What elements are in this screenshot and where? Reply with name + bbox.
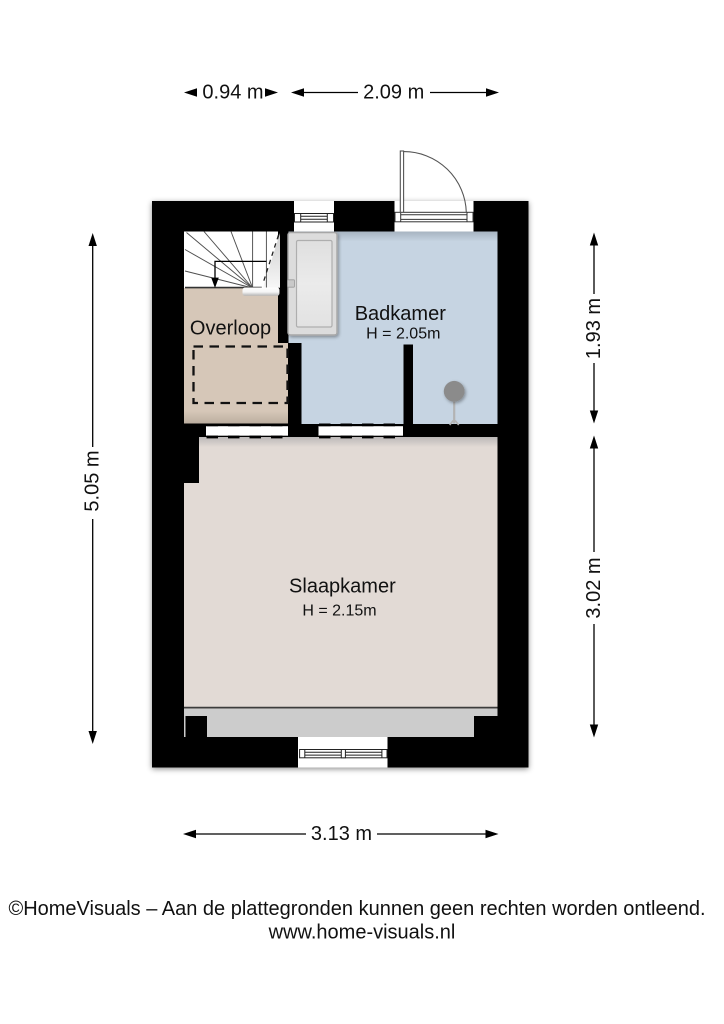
svg-text:©HomeVisuals – Aan de plattegr: ©HomeVisuals – Aan de plattegronden kunn… <box>8 898 705 920</box>
svg-text:Slaapkamer: Slaapkamer <box>289 576 396 598</box>
svg-text:www.home-visuals.nl: www.home-visuals.nl <box>268 922 456 944</box>
svg-text:Overloop: Overloop <box>190 318 271 340</box>
svg-text:1.93 m: 1.93 m <box>583 298 605 359</box>
svg-text:5.05 m: 5.05 m <box>82 450 104 511</box>
svg-text:2.09 m: 2.09 m <box>363 82 424 104</box>
svg-text:H = 2.05m: H = 2.05m <box>366 326 440 343</box>
svg-text:H = 2.15m: H = 2.15m <box>302 603 376 620</box>
svg-text:3.02 m: 3.02 m <box>583 557 605 618</box>
svg-text:3.13 m: 3.13 m <box>311 823 372 845</box>
svg-text:0.94 m: 0.94 m <box>202 82 263 104</box>
svg-text:Badkamer: Badkamer <box>355 303 446 325</box>
